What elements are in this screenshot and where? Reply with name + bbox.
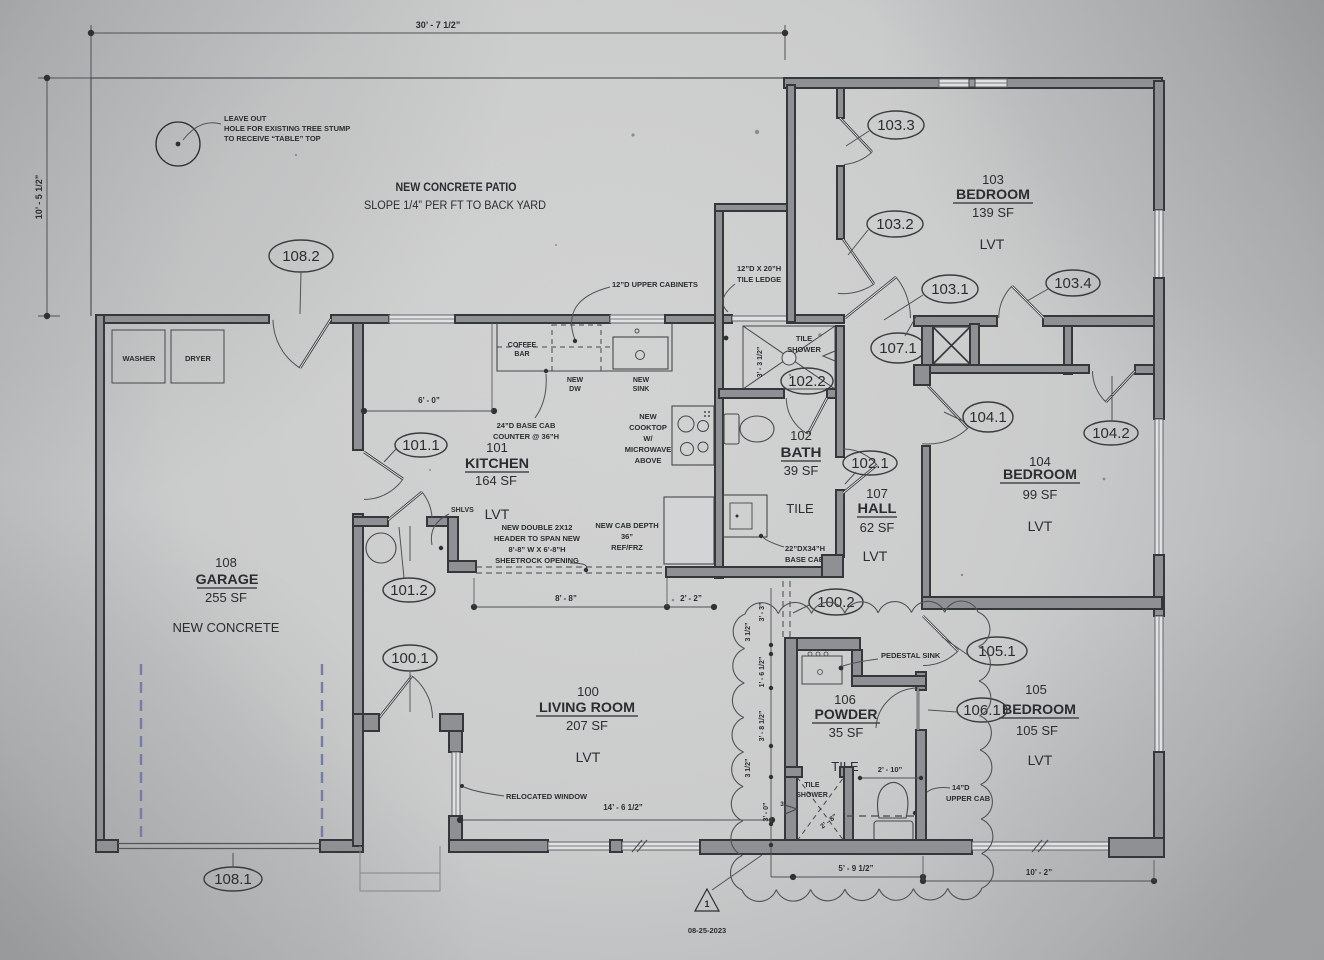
svg-text:102: 102: [790, 428, 812, 443]
svg-text:NEW: NEW: [633, 377, 650, 384]
svg-text:103.3: 103.3: [877, 117, 915, 134]
svg-text:100.1: 100.1: [391, 650, 429, 667]
svg-text:LVT: LVT: [1028, 752, 1053, 768]
svg-text:SLOPE 1/4” PER FT TO BACK YARD: SLOPE 1/4” PER FT TO BACK YARD: [364, 200, 546, 212]
svg-text:104.1: 104.1: [969, 409, 1007, 426]
svg-text:BEDROOM: BEDROOM: [1002, 701, 1076, 717]
svg-text:W/: W/: [643, 434, 653, 443]
svg-text:ABOVE: ABOVE: [635, 456, 662, 465]
svg-text:NEW DOUBLE 2X12: NEW DOUBLE 2X12: [502, 523, 573, 532]
svg-text:TILE: TILE: [786, 501, 814, 516]
svg-text:NEW: NEW: [639, 412, 657, 421]
svg-text:2’ - 10”: 2’ - 10”: [878, 765, 903, 774]
svg-text:GARAGE: GARAGE: [196, 571, 259, 587]
svg-text:3’ - 8 1/2”: 3’ - 8 1/2”: [759, 711, 766, 742]
svg-text:14’ - 6 1/2”: 14’ - 6 1/2”: [603, 803, 643, 812]
svg-text:DW: DW: [569, 386, 581, 393]
svg-text:107.1: 107.1: [879, 340, 917, 357]
svg-text:103.1: 103.1: [931, 281, 969, 298]
svg-text:COFFEE: COFFEE: [508, 342, 537, 349]
svg-text:TILE: TILE: [804, 782, 819, 789]
svg-text:102.2: 102.2: [788, 373, 826, 390]
svg-text:KITCHEN: KITCHEN: [465, 455, 529, 471]
svg-text:3’: 3’: [780, 801, 786, 808]
svg-text:3 1/2”: 3 1/2”: [745, 758, 752, 777]
svg-text:UPPER CAB: UPPER CAB: [946, 794, 991, 803]
svg-text:255 SF: 255 SF: [205, 590, 247, 605]
svg-text:2’ - 2”: 2’ - 2”: [680, 594, 702, 603]
svg-text:12”D UPPER CABINETS: 12”D UPPER CABINETS: [612, 280, 698, 289]
svg-text:3’ - 3”: 3’ - 3”: [759, 602, 766, 621]
svg-text:BEDROOM: BEDROOM: [956, 186, 1030, 202]
svg-text:62 SF: 62 SF: [860, 520, 895, 535]
svg-text:99 SF: 99 SF: [1023, 487, 1058, 502]
svg-text:TILE: TILE: [796, 334, 812, 343]
svg-text:LIVING ROOM: LIVING ROOM: [539, 699, 635, 715]
svg-text:RELOCATED WINDOW: RELOCATED WINDOW: [506, 792, 588, 801]
svg-text:HEADER TO SPAN NEW: HEADER TO SPAN NEW: [494, 534, 581, 543]
svg-text:207 SF: 207 SF: [566, 718, 608, 733]
svg-text:106: 106: [834, 692, 856, 707]
svg-text:102.1: 102.1: [851, 455, 889, 472]
svg-text:3 1/2”: 3 1/2”: [745, 622, 752, 641]
svg-text:22”DX34”H: 22”DX34”H: [785, 544, 825, 553]
svg-text:SHOWER: SHOWER: [796, 792, 828, 799]
svg-text:SHLVS: SHLVS: [451, 507, 474, 514]
svg-text:108.1: 108.1: [214, 871, 252, 888]
svg-text:107: 107: [866, 486, 888, 501]
svg-text:SHOWER: SHOWER: [787, 345, 821, 354]
svg-text:101.1: 101.1: [402, 437, 440, 454]
svg-text:SINK: SINK: [633, 386, 650, 393]
svg-text:104.2: 104.2: [1092, 425, 1130, 442]
svg-text:101: 101: [486, 440, 508, 455]
svg-text:BAR: BAR: [514, 351, 529, 358]
svg-text:103.2: 103.2: [876, 216, 914, 233]
svg-text:36”: 36”: [621, 532, 633, 541]
svg-text:30’ - 7 1/2”: 30’ - 7 1/2”: [416, 20, 461, 30]
svg-text:103: 103: [982, 172, 1004, 187]
svg-text:BASE CAB: BASE CAB: [785, 555, 825, 564]
svg-text:COOKTOP: COOKTOP: [629, 423, 667, 432]
svg-text:10’ - 2”: 10’ - 2”: [1026, 868, 1052, 877]
svg-text:LEAVE OUT: LEAVE OUT: [224, 114, 267, 123]
svg-text:8’ - 8”: 8’ - 8”: [555, 594, 577, 603]
svg-text:14”D: 14”D: [952, 783, 970, 792]
svg-text:105: 105: [1025, 682, 1047, 697]
svg-text:NEW CONCRETE: NEW CONCRETE: [173, 620, 280, 635]
svg-text:WASHER: WASHER: [123, 354, 157, 363]
svg-text:139 SF: 139 SF: [972, 205, 1014, 220]
svg-text:164 SF: 164 SF: [475, 473, 517, 488]
svg-text:REF/FRZ: REF/FRZ: [611, 543, 643, 552]
svg-text:LVT: LVT: [485, 506, 510, 522]
svg-text:12”D X 20”H: 12”D X 20”H: [737, 264, 781, 273]
svg-text:6’ - 0”: 6’ - 0”: [418, 396, 440, 405]
svg-text:39 SF: 39 SF: [784, 463, 819, 478]
svg-text:100: 100: [577, 684, 599, 699]
svg-text:NEW CONCRETE PATIO: NEW CONCRETE PATIO: [396, 180, 517, 194]
svg-text:LVT: LVT: [576, 749, 601, 765]
svg-text:24”D BASE CAB: 24”D BASE CAB: [497, 421, 556, 430]
svg-text:101.2: 101.2: [390, 582, 428, 599]
svg-text:10’ - 5 1/2”: 10’ - 5 1/2”: [34, 175, 44, 220]
svg-text:08-25-2023: 08-25-2023: [688, 926, 726, 935]
svg-text:105.1: 105.1: [978, 643, 1016, 660]
svg-text:LVT: LVT: [863, 548, 888, 564]
svg-text:105 SF: 105 SF: [1016, 723, 1058, 738]
svg-text:LVT: LVT: [980, 236, 1005, 252]
svg-text:HALL: HALL: [858, 500, 897, 516]
svg-text:NEW CAB DEPTH: NEW CAB DEPTH: [595, 521, 658, 530]
svg-text:TILE LEDGE: TILE LEDGE: [737, 275, 781, 284]
svg-text:NEW: NEW: [567, 377, 584, 384]
svg-text:MICROWAVE: MICROWAVE: [625, 445, 672, 454]
svg-text:1’ - 6 1/2”: 1’ - 6 1/2”: [759, 657, 766, 688]
svg-text:108: 108: [215, 555, 237, 570]
svg-text:DRYER: DRYER: [185, 354, 212, 363]
svg-text:SHEETROCK OPENING: SHEETROCK OPENING: [495, 556, 579, 565]
svg-text:LVT: LVT: [1028, 518, 1053, 534]
svg-text:BATH: BATH: [781, 444, 822, 460]
svg-text:108.2: 108.2: [282, 248, 320, 265]
svg-text:BEDROOM: BEDROOM: [1003, 466, 1077, 482]
svg-text:POWDER: POWDER: [815, 706, 878, 722]
svg-text:35 SF: 35 SF: [829, 725, 864, 740]
svg-text:3’ - 0”: 3’ - 0”: [763, 802, 770, 821]
svg-text:3’ - 3 1/2”: 3’ - 3 1/2”: [757, 347, 764, 378]
svg-text:PEDESTAL SINK: PEDESTAL SINK: [881, 651, 941, 660]
svg-text:HOLE FOR EXISTING TREE STUMP: HOLE FOR EXISTING TREE STUMP: [224, 124, 350, 133]
svg-text:103.4: 103.4: [1054, 275, 1092, 292]
svg-text:8’-8” W X 6’-8”H: 8’-8” W X 6’-8”H: [508, 545, 565, 554]
svg-text:5’ - 9 1/2”: 5’ - 9 1/2”: [838, 864, 873, 873]
svg-text:1: 1: [704, 899, 709, 909]
svg-text:TO RECEIVE “TABLE” TOP: TO RECEIVE “TABLE” TOP: [224, 134, 321, 143]
